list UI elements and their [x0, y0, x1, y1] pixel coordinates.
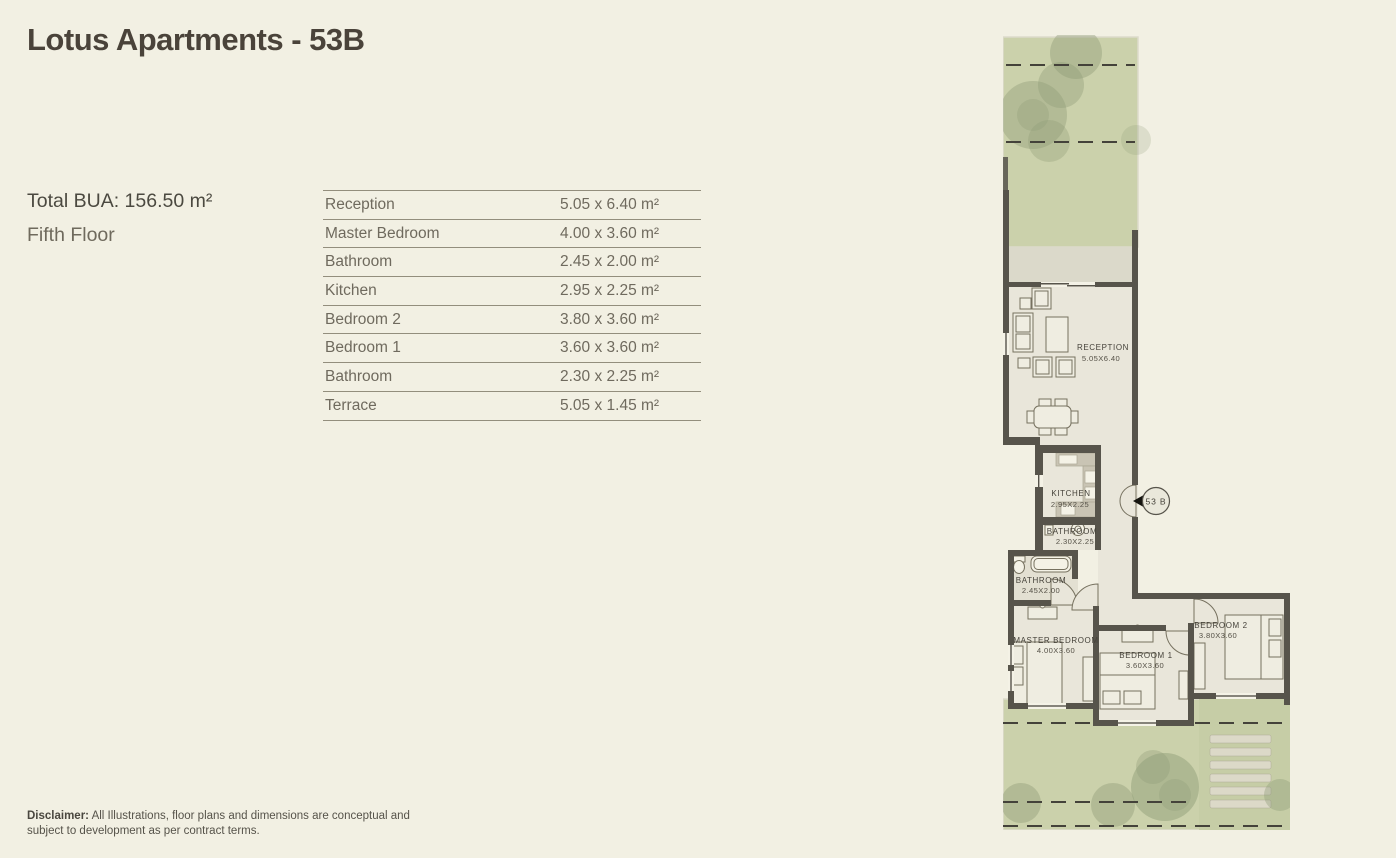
- floor-plan: TERRACE 5.05X1.45: [1003, 35, 1290, 830]
- svg-text:4.00X3.60: 4.00X3.60: [1037, 646, 1075, 655]
- room-name: Bathroom: [323, 253, 560, 271]
- table-row: Bathroom 2.30 x 2.25 m²: [323, 362, 701, 391]
- svg-text:5.05X6.40: 5.05X6.40: [1082, 354, 1120, 363]
- table-row: Terrace 5.05 x 1.45 m²: [323, 391, 701, 420]
- bathroom-small-label: BATHROOM: [1047, 527, 1097, 536]
- room-dims: 4.00 x 3.60 m²: [560, 225, 701, 243]
- page-title: Lotus Apartments - 53B: [27, 22, 365, 58]
- table-row: Master Bedroom 4.00 x 3.60 m²: [323, 219, 701, 248]
- room-dims: 2.45 x 2.00 m²: [560, 253, 701, 271]
- top-garden: [1003, 35, 1151, 247]
- disclaimer-label: Disclaimer:: [27, 810, 89, 822]
- table-row: Kitchen 2.95 x 2.25 m²: [323, 276, 701, 305]
- kitchen-label: KITCHEN: [1051, 489, 1090, 498]
- room-name: Bedroom 2: [323, 311, 560, 329]
- wardrobe: [1194, 643, 1205, 689]
- svg-text:3.60X3.60: 3.60X3.60: [1126, 661, 1164, 670]
- table-row: Reception 5.05 x 6.40 m²: [323, 190, 701, 219]
- dresser: [1028, 607, 1057, 619]
- table-row: Bedroom 1 3.60 x 3.60 m²: [323, 333, 701, 362]
- brochure-page: Lotus Apartments - 53B Total BUA: 156.50…: [0, 0, 1396, 858]
- room-dims: 5.05 x 6.40 m²: [560, 196, 701, 214]
- room-dims: 3.80 x 3.60 m²: [560, 311, 701, 329]
- room-name: Master Bedroom: [323, 225, 560, 243]
- reception-label: RECEPTION: [1077, 343, 1129, 352]
- room-name: Bedroom 1: [323, 339, 560, 357]
- room-name: Bathroom: [323, 368, 560, 386]
- master-bedroom-label: MASTER BEDROOM: [1013, 636, 1098, 645]
- unit-number-label: 53 B: [1146, 497, 1167, 507]
- room-dims: 2.95 x 2.25 m²: [560, 282, 701, 300]
- room-name: Terrace: [323, 397, 560, 415]
- svg-text:3.80X3.60: 3.80X3.60: [1199, 631, 1237, 640]
- room-name: Reception: [323, 196, 560, 214]
- total-bua-text: Total BUA: 156.50 m²: [27, 190, 212, 213]
- disclaimer-text: Disclaimer: All Illustrations, floor pla…: [27, 809, 427, 839]
- svg-text:2.95X2.25: 2.95X2.25: [1051, 500, 1089, 509]
- room-name: Kitchen: [323, 282, 560, 300]
- nightstand: [1179, 671, 1188, 699]
- svg-text:2.30X2.25: 2.30X2.25: [1056, 537, 1094, 546]
- bathroom-master-label: BATHROOM: [1016, 576, 1066, 585]
- room-dims: 3.60 x 3.60 m²: [560, 339, 701, 357]
- room-dims: 5.05 x 1.45 m²: [560, 397, 701, 415]
- room-dims: 2.30 x 2.25 m²: [560, 368, 701, 386]
- floor-name-text: Fifth Floor: [27, 224, 115, 247]
- bedroom-1-label: BEDROOM 1: [1119, 651, 1172, 660]
- unit-marker: 53 B: [1133, 488, 1170, 515]
- floor-plan-drawing: TERRACE 5.05X1.45: [1003, 35, 1290, 830]
- svg-text:2.45X2.00: 2.45X2.00: [1022, 586, 1060, 595]
- table-row: Bathroom 2.45 x 2.00 m²: [323, 247, 701, 276]
- room-dimensions-table: Reception 5.05 x 6.40 m² Master Bedroom …: [323, 190, 701, 421]
- bedroom-2-label: BEDROOM 2: [1194, 621, 1247, 630]
- table-row: Bedroom 2 3.80 x 3.60 m²: [323, 305, 701, 334]
